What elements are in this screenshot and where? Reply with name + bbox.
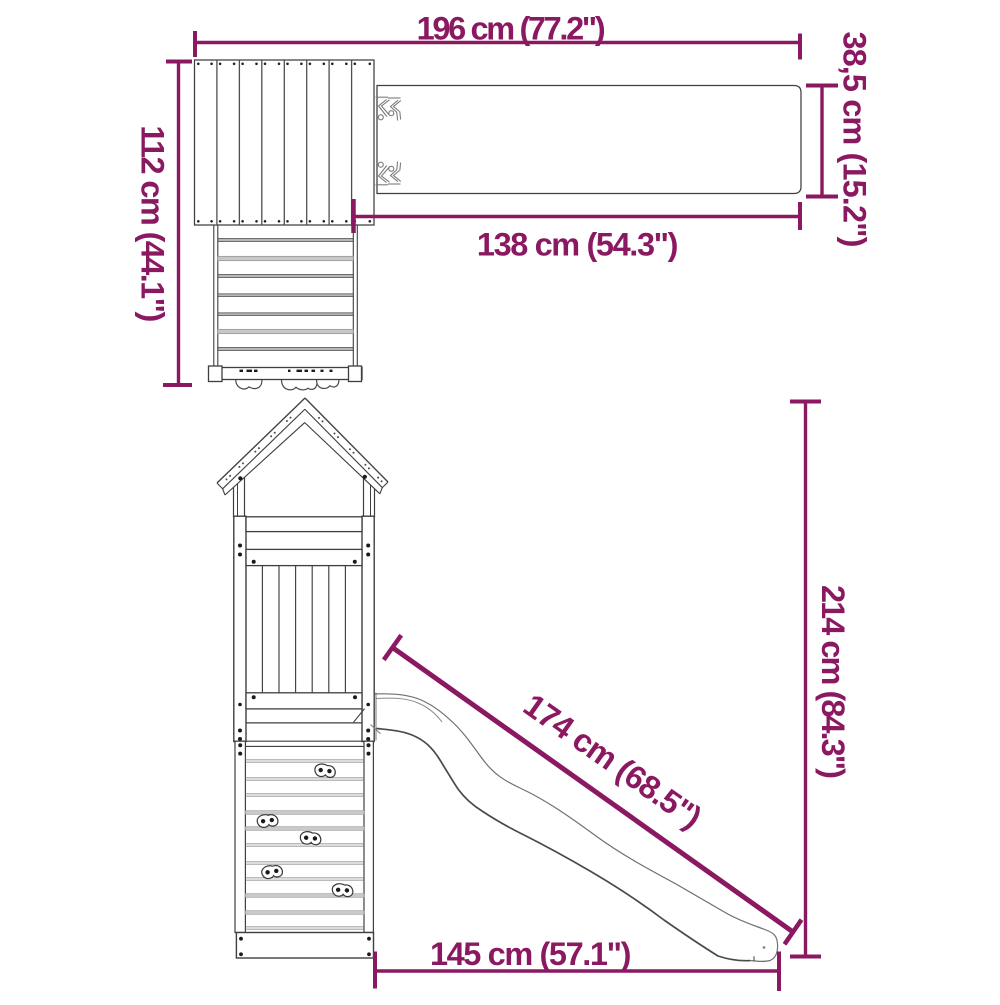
svg-text:112 cm (44.1"): 112 cm (44.1") <box>135 125 171 321</box>
svg-text:214 cm (84.3"): 214 cm (84.3") <box>815 585 851 778</box>
svg-text:145 cm (57.1"): 145 cm (57.1") <box>430 936 631 972</box>
svg-text:38,5 cm (15.2"): 38,5 cm (15.2") <box>837 31 873 246</box>
svg-text:138 cm (54.3"): 138 cm (54.3") <box>477 227 678 263</box>
svg-text:196 cm (77.2"): 196 cm (77.2") <box>417 11 605 47</box>
